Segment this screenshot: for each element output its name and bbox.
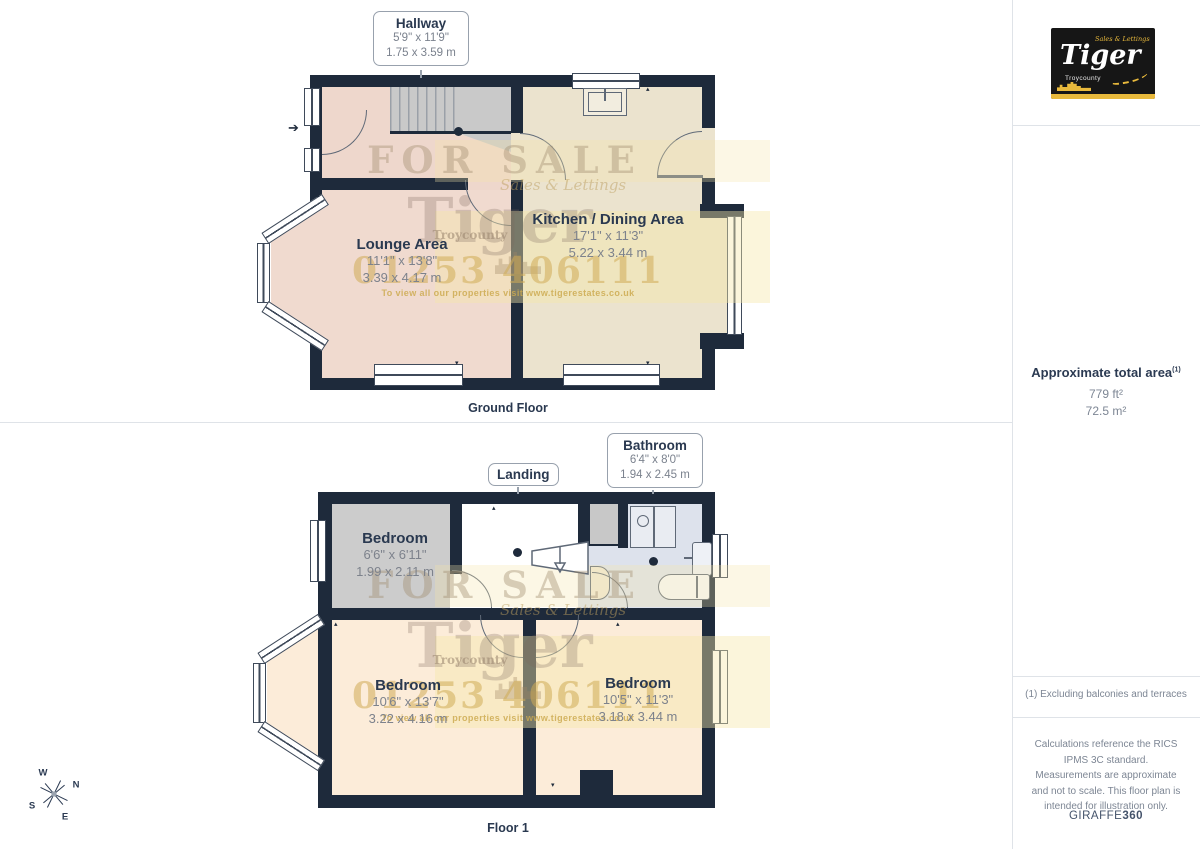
window: [712, 650, 728, 724]
wall: [332, 608, 480, 620]
room-label-kitchen: Kitchen / Dining Area 17'1" x 11'3" 5.22…: [532, 211, 683, 262]
total-area-text: Approximate total area: [1031, 365, 1172, 380]
sidebar-rule: [1013, 125, 1200, 126]
credit-brand: GIRAFFE: [1069, 810, 1122, 822]
total-area-imperial: 779 ft²: [1012, 387, 1200, 401]
side-porch-floor: [702, 218, 729, 333]
room-dims-metric: 1.99 x 2.11 m: [356, 564, 434, 581]
logo-skyline-icon: [1057, 82, 1091, 91]
room-dims-imperial: 5'9" x 11'9": [380, 31, 462, 46]
stair-edge: [390, 131, 511, 134]
room-dims-imperial: 10'6" x 13'7": [369, 694, 448, 711]
bay-window: [257, 243, 270, 303]
callout-connector: [652, 490, 654, 494]
room-dims-metric: 5.22 x 3.44 m: [532, 245, 683, 262]
footnote: (1) Excluding balconies and terraces: [1012, 689, 1200, 700]
window: [304, 88, 320, 126]
bathtub-icon: [658, 574, 710, 600]
room-name: Bedroom: [599, 675, 678, 692]
window: [310, 520, 326, 582]
room-dims-metric: 3.18 x 3.44 m: [599, 709, 678, 726]
room-label-bedroom-right: Bedroom 10'5" x 11'3" 3.18 x 3.44 m: [599, 675, 678, 726]
window: [727, 216, 742, 335]
room-name: Kitchen / Dining Area: [532, 211, 683, 228]
compass-e: E: [62, 811, 68, 822]
total-area-label: Approximate total area(1): [1012, 365, 1200, 380]
callout-connector: [420, 70, 422, 78]
bay-window: [253, 663, 266, 723]
camera-point: [513, 548, 522, 557]
entrance-arrow-icon: ➔: [288, 120, 299, 136]
staircase-down-icon: [528, 540, 592, 576]
basin-icon: [692, 542, 712, 576]
logo-bar: [1051, 94, 1155, 99]
room-label-bedroom-left: Bedroom 10'6" x 13'7" 3.22 x 4.16 m: [369, 677, 448, 728]
callout-landing: Landing: [488, 463, 559, 486]
wall-tick: ▾: [551, 782, 555, 789]
room-label-lounge: Lounge Area 11'1" x 13'8" 3.39 x 4.17 m: [356, 236, 447, 287]
callout-hallway: Hallway 5'9" x 11'9" 1.75 x 3.59 m: [373, 11, 469, 66]
staircase: [390, 87, 458, 133]
compass-icon: N E S W: [19, 759, 89, 829]
footnote-ref: (1): [1172, 367, 1181, 374]
door-opening: [702, 128, 715, 178]
window: [304, 148, 320, 172]
wall-tick: ▴: [492, 505, 496, 512]
total-area-metric: 72.5 m²: [1012, 404, 1200, 418]
sidebar-divider: [1012, 0, 1013, 849]
wall-tick: ▾: [455, 360, 459, 367]
section-divider: [0, 422, 1012, 423]
compass-n: N: [73, 779, 80, 790]
wall-tick: ▴: [646, 86, 650, 93]
callout-connector: [517, 487, 519, 494]
wall: [450, 504, 462, 574]
room-dims-imperial: 6'4" x 8'0": [614, 453, 696, 468]
sidebar-rule: [1013, 717, 1200, 718]
room-name: Bedroom: [369, 677, 448, 694]
shower-head-icon: [637, 515, 649, 527]
disclaimer: Calculations reference the RICS IPMS 3C …: [1030, 737, 1182, 815]
wall: [511, 180, 523, 378]
door-leaf: [657, 175, 703, 178]
window: [712, 534, 728, 578]
logo-brand: Tiger: [1060, 40, 1141, 71]
room-dims-imperial: 17'1" x 11'3": [532, 228, 683, 245]
window: [374, 364, 463, 386]
room-name: Hallway: [380, 16, 462, 31]
compass-w: W: [39, 767, 48, 778]
cupboard: [590, 504, 618, 546]
window: [572, 73, 640, 89]
agency-logo: Sales & Lettings Tiger Troycounty: [1051, 28, 1155, 99]
room-dims-metric: 1.94 x 2.45 m: [614, 468, 696, 483]
room-name: Lounge Area: [356, 236, 447, 253]
compass-s: S: [29, 800, 35, 811]
wall: [618, 504, 628, 548]
wall: [310, 178, 468, 190]
floor-label-1: Floor 1: [487, 821, 529, 835]
room-name: Bedroom: [356, 530, 434, 547]
room-dims-imperial: 11'1" x 13'8": [356, 253, 447, 270]
wall-tick: ▴: [316, 192, 320, 199]
tap-icon: [684, 557, 692, 559]
room-name: Bathroom: [614, 438, 696, 453]
room-dims-metric: 3.39 x 4.17 m: [356, 270, 447, 287]
sidebar-rule: [1013, 676, 1200, 677]
room-label-bedroom-small: Bedroom 6'6" x 6'11" 1.99 x 2.11 m: [356, 530, 434, 581]
shower-screen: [653, 506, 655, 548]
credit-suffix: 360: [1122, 810, 1143, 822]
room-name: Landing: [497, 467, 550, 482]
logo-subtitle: Troycounty: [1065, 75, 1101, 82]
wall: [700, 333, 744, 349]
floorplan-page: ➔ ▴ ▴ ▾ ▾: [0, 0, 1200, 849]
wall-tick: ▾: [646, 360, 650, 367]
bathtub-line: [696, 576, 698, 598]
tap-icon: [604, 88, 606, 101]
camera-point: [454, 127, 463, 136]
credit: GIRAFFE360: [1012, 810, 1200, 822]
window: [563, 364, 660, 386]
room-dims-metric: 3.22 x 4.16 m: [369, 711, 448, 728]
floor-label-ground: Ground Floor: [468, 401, 548, 415]
callout-bathroom: Bathroom 6'4" x 8'0" 1.94 x 2.45 m: [607, 433, 703, 488]
room-dims-imperial: 6'6" x 6'11": [356, 547, 434, 564]
room-dims-imperial: 10'5" x 11'3": [599, 692, 678, 709]
wall: [523, 608, 536, 620]
wall: [523, 620, 536, 795]
chimney-breast: [580, 770, 613, 795]
wall-tick: ▴: [334, 621, 338, 628]
wall: [579, 608, 715, 620]
camera-point: [649, 557, 658, 566]
room-dims-metric: 1.75 x 3.59 m: [380, 46, 462, 61]
wall: [511, 87, 523, 133]
wall-tick: ▴: [616, 621, 620, 628]
